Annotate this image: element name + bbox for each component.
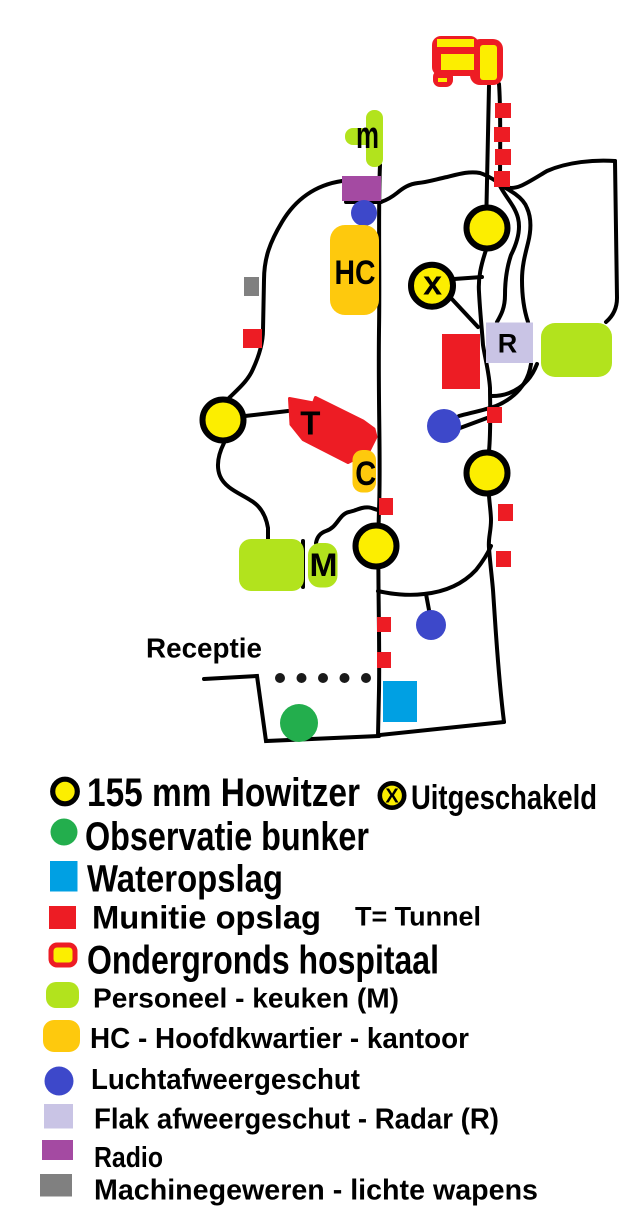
svg-text:R: R	[498, 329, 518, 359]
svg-text:Radio: Radio	[94, 1142, 163, 1174]
svg-text:T: T	[300, 405, 320, 442]
svg-text:HC - Hoofdkwartier - kantoor: HC - Hoofdkwartier - kantoor	[90, 1023, 469, 1055]
svg-text:X: X	[385, 786, 399, 808]
svg-text:x: x	[423, 265, 442, 303]
svg-text:Machinegeweren - lichte wapens: Machinegeweren - lichte wapens	[94, 1175, 538, 1207]
svg-text:HC: HC	[335, 254, 376, 292]
svg-text:Munitie opslag: Munitie opslag	[92, 900, 321, 936]
svg-text:Receptie: Receptie	[146, 633, 262, 664]
svg-text:C: C	[355, 455, 376, 493]
svg-text:M: M	[310, 547, 338, 583]
svg-text:T= Tunnel: T= Tunnel	[355, 902, 481, 932]
svg-text:Flak afweergeschut - Radar (R): Flak afweergeschut - Radar (R)	[94, 1104, 499, 1136]
svg-text:Wateropslag: Wateropslag	[87, 859, 283, 901]
svg-text:Luchtafweergeschut: Luchtafweergeschut	[91, 1064, 360, 1096]
svg-text:Personeel - keuken (M): Personeel - keuken (M)	[93, 983, 399, 1014]
svg-text:Observatie bunker: Observatie bunker	[85, 815, 369, 859]
svg-text:Ondergronds hospitaal: Ondergronds hospitaal	[87, 939, 439, 983]
svg-text:Uitgeschakeld: Uitgeschakeld	[411, 779, 597, 817]
svg-text:155 mm Howitzer: 155 mm Howitzer	[87, 771, 360, 815]
svg-text:m: m	[356, 115, 379, 157]
